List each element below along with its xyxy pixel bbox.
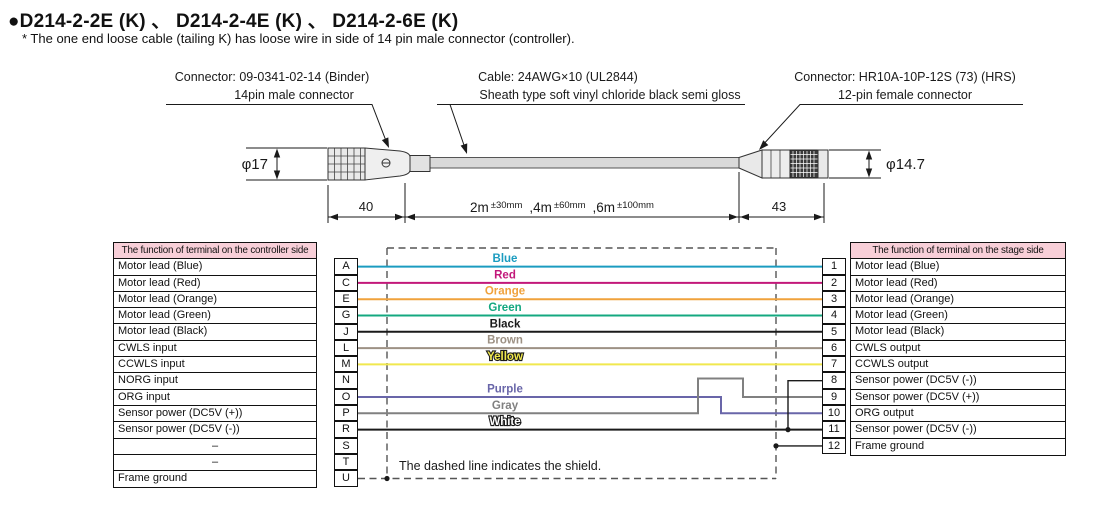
left-connector-label-line2: 14pin male connector (234, 88, 354, 102)
table-row: Sensor power (DC5V (-)) (851, 373, 1065, 389)
table-row: ORG input (114, 390, 316, 406)
table-row: – (114, 439, 316, 455)
pin-box: 10 (822, 405, 846, 421)
table-row: – (114, 455, 316, 471)
table-row: Motor lead (Orange) (114, 292, 316, 308)
wire-purple (358, 397, 822, 413)
dimension-phi17: φ17 (242, 148, 327, 180)
table-row: Motor lead (Black) (114, 324, 316, 340)
wire-label-purple: Purple (487, 384, 523, 396)
pin-box: L (334, 340, 358, 356)
wire-labels: Blue Red Orange Green Black Brown Yellow… (485, 253, 525, 428)
table-row: CCWLS output (851, 357, 1065, 373)
wire-label-blue: Blue (493, 253, 518, 265)
stage-table-header: The function of terminal on the stage si… (851, 243, 1065, 259)
cable-label-line2: Sheath type soft vinyl chloride black se… (479, 88, 740, 102)
wires (358, 267, 822, 433)
right-connector-drawing (739, 150, 828, 178)
pin-box: 1 (822, 258, 846, 274)
pin-box: T (334, 454, 358, 470)
pin-box: 7 (822, 356, 846, 372)
pin-box: C (334, 275, 358, 291)
pin-box: J (334, 324, 358, 340)
table-row: Frame ground (114, 471, 316, 487)
catalog-page: ●D214-2-2E (K) 、 D214-2-4E (K) 、 D214-2-… (0, 0, 1099, 530)
wire-label-red: Red (494, 269, 516, 281)
pin-box: G (334, 307, 358, 323)
leader-arrow (382, 137, 392, 149)
pin-box: N (334, 372, 358, 388)
right-connector-label-line1: Connector: HR10A-10P-12S (73) (HRS) (794, 70, 1016, 84)
wire-gray (358, 379, 822, 414)
pin-box: 12 (822, 438, 846, 454)
pin-box: 6 (822, 340, 846, 356)
controller-table-header: The function of terminal on the controll… (114, 243, 316, 259)
dim-40-text: 40 (359, 199, 373, 214)
table-row: Motor lead (Red) (851, 276, 1065, 292)
phi14-7-text: φ14.7 (886, 156, 925, 173)
controller-pin-column: A C E G J L M N O P R S T U (334, 258, 358, 486)
pin-box: 8 (822, 372, 846, 388)
table-row: NORG input (114, 373, 316, 389)
stage-pin-column: 1 2 3 4 5 6 7 8 9 10 11 12 (822, 258, 846, 454)
shield-note: The dashed line indicates the shield. (399, 459, 601, 473)
table-row: CWLS output (851, 341, 1065, 357)
pin-box: 2 (822, 275, 846, 291)
pin-box: U (334, 470, 358, 486)
callout-right-connector: Connector: HR10A-10P-12S (73) (HRS) 12-p… (756, 70, 1023, 152)
wire-junction-dot (785, 427, 790, 432)
wire-label-black: Black (490, 318, 521, 330)
pin-box: R (334, 421, 358, 437)
dimension-bottom: 40 43 2m±30mm,4m±60mm,6m±100mm (328, 172, 824, 223)
pin-box: P (334, 405, 358, 421)
stage-table: The function of terminal on the stage si… (850, 242, 1066, 456)
shield-junction-dot (384, 476, 389, 481)
table-row: Motor lead (Black) (851, 324, 1065, 340)
pin-box: S (334, 438, 358, 454)
table-row: Motor lead (Blue) (851, 259, 1065, 275)
pin-box: M (334, 356, 358, 372)
table-row: Frame ground (851, 439, 1065, 455)
table-row: Motor lead (Green) (851, 308, 1065, 324)
pin-box: 5 (822, 324, 846, 340)
table-row: ORG output (851, 406, 1065, 422)
left-connector-drawing (328, 148, 430, 180)
pin-box: E (334, 291, 358, 307)
table-row: Sensor power (DC5V (-)) (114, 422, 316, 438)
cable-body (430, 158, 740, 169)
cable-assembly-drawing (328, 148, 828, 180)
cable-label-line1: Cable: 24AWG×10 (UL2844) (478, 70, 638, 84)
table-row: CWLS input (114, 341, 316, 357)
left-connector-label-line1: Connector: 09-0341-02-14 (Binder) (175, 70, 370, 84)
leader-arrow (461, 143, 471, 155)
table-row: Motor lead (Orange) (851, 292, 1065, 308)
wire-label-orange: Orange (485, 286, 525, 298)
table-row: Motor lead (Red) (114, 276, 316, 292)
pin-box: A (334, 258, 358, 274)
table-row: CCWLS input (114, 357, 316, 373)
table-row: Sensor power (DC5V (-)) (851, 422, 1065, 438)
right-connector-label-line2: 12-pin female connector (838, 88, 972, 102)
wire-label-yellow: Yellow (487, 351, 523, 363)
controller-table: The function of terminal on the controll… (113, 242, 317, 488)
pin-box: 3 (822, 291, 846, 307)
dimension-phi14_7: φ14.7 (829, 150, 925, 178)
pin-box: 4 (822, 307, 846, 323)
pin-box: 11 (822, 421, 846, 437)
table-row: Motor lead (Green) (114, 308, 316, 324)
pin-box: 9 (822, 389, 846, 405)
pin8-white-branch (788, 381, 822, 430)
table-row: Motor lead (Blue) (114, 259, 316, 275)
pin-box: O (334, 389, 358, 405)
phi17-text: φ17 (242, 156, 268, 173)
dim-43-text: 43 (772, 199, 786, 214)
wire-label-brown: Brown (487, 335, 523, 347)
wire-label-white: White (489, 416, 520, 428)
table-row: Sensor power (DC5V (+)) (114, 406, 316, 422)
callout-cable: Cable: 24AWG×10 (UL2844) Sheath type sof… (437, 70, 745, 155)
callout-left-connector: Connector: 09-0341-02-14 (Binder) 14pin … (166, 70, 392, 149)
wire-label-green: Green (488, 302, 521, 314)
wire-label-gray: Gray (492, 400, 519, 412)
table-row: Sensor power (DC5V (+)) (851, 390, 1065, 406)
dim-cable-length-text: 2m±30mm,4m±60mm,6m±100mm (470, 200, 654, 215)
